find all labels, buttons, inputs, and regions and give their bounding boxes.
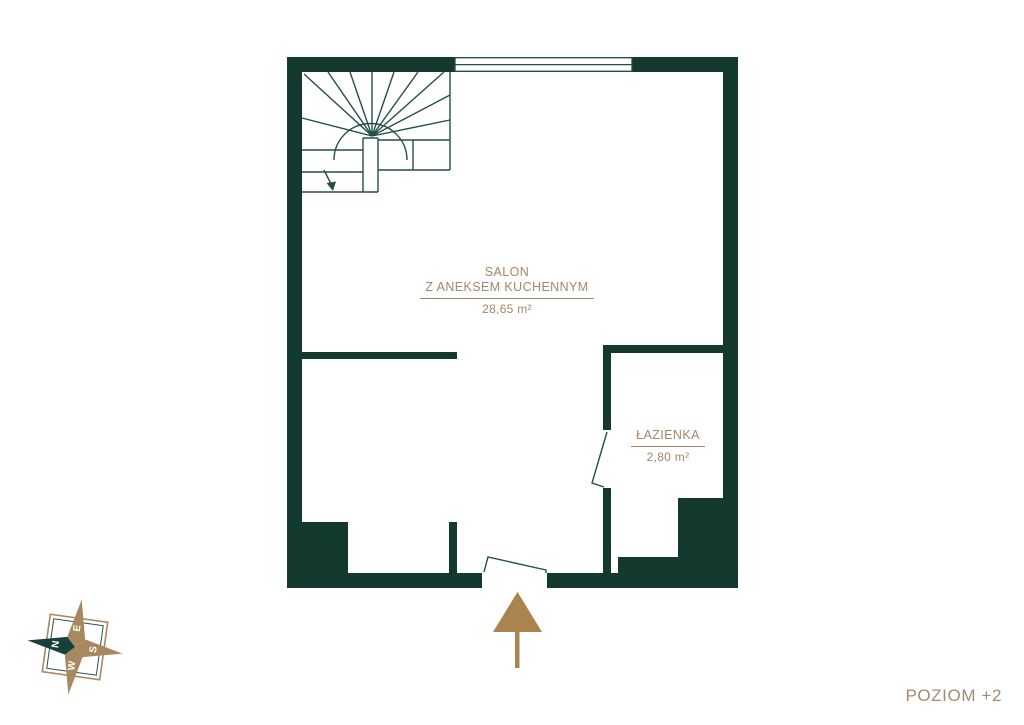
- room-area-lazienka: 2,80 m²: [568, 450, 768, 465]
- entrance-door: [484, 557, 546, 573]
- room-label-salon: SALON Z ANEKSEM KUCHENNYM 28,65 m²: [407, 265, 607, 317]
- room-subtitle-salon: Z ANEKSEM KUCHENNYM: [420, 280, 593, 299]
- floor-plan-page: N E S W SALON Z ANEKSEM KUCHENNYM 28,65 …: [0, 0, 1024, 725]
- compass-north-label: N: [50, 640, 62, 649]
- staircase: [302, 72, 450, 192]
- window-symbol: [455, 58, 632, 72]
- level-label: POZIOM +2: [905, 686, 1002, 706]
- room-name-salon: SALON: [407, 265, 607, 280]
- walls: [287, 57, 738, 588]
- room-area-salon: 28,65 m²: [407, 302, 607, 317]
- room-name-lazienka: ŁAZIENKA: [631, 428, 705, 447]
- entrance-arrow-icon: [493, 592, 542, 668]
- floor-plan-drawing: N E S W: [0, 0, 1024, 725]
- room-label-lazienka: ŁAZIENKA 2,80 m²: [568, 428, 768, 465]
- stair-arrow-head: [327, 182, 337, 192]
- compass-rose-icon: N E S W: [21, 593, 129, 701]
